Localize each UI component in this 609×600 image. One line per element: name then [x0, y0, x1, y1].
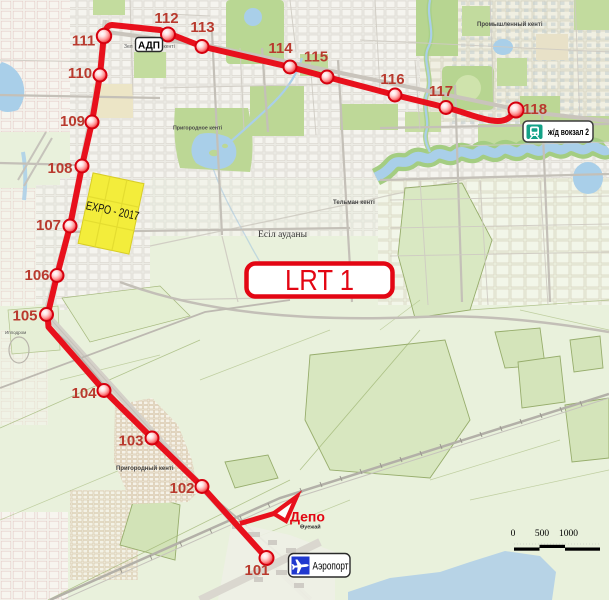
svg-text:Аэропорт: Аэропорт [313, 561, 349, 573]
svg-text:102: 102 [169, 480, 194, 497]
svg-text:1000: 1000 [559, 529, 578, 539]
svg-text:107: 107 [36, 217, 61, 234]
svg-text:101: 101 [244, 562, 269, 579]
svg-text:Пригородное кенті: Пригородное кенті [173, 126, 223, 132]
svg-text:117: 117 [429, 83, 453, 100]
svg-text:104: 104 [71, 385, 97, 402]
svg-text:Депо: Депо [290, 509, 325, 525]
svg-text:АДП: АДП [138, 40, 160, 52]
svg-text:ж/д вокзал 2: ж/д вокзал 2 [547, 127, 589, 138]
svg-text:Тельман кенті: Тельман кенті [333, 200, 375, 206]
svg-text:115: 115 [304, 49, 328, 66]
svg-text:108: 108 [47, 160, 72, 177]
svg-text:116: 116 [380, 71, 404, 88]
svg-text:Өуежай: Өуежай [300, 524, 321, 531]
svg-text:Ипподром: Ипподром [5, 330, 26, 335]
svg-text:Зел: Зел [124, 44, 133, 50]
svg-text:112: 112 [154, 10, 178, 27]
svg-text:LRT 1: LRT 1 [285, 265, 354, 297]
svg-text:111: 111 [72, 33, 95, 50]
svg-text:500: 500 [535, 529, 550, 539]
svg-text:113: 113 [190, 19, 214, 36]
svg-text:103: 103 [118, 433, 143, 450]
svg-text:114: 114 [268, 40, 293, 57]
svg-text:118: 118 [523, 101, 547, 118]
svg-text:Есіл ауданы: Есіл ауданы [258, 230, 308, 240]
svg-text:0: 0 [511, 529, 516, 539]
svg-text:105: 105 [12, 308, 37, 325]
svg-text:106: 106 [24, 267, 49, 284]
svg-text:Промышленный кенті: Промышленный кенті [477, 21, 543, 28]
svg-text:109: 109 [60, 113, 85, 130]
svg-text:Пригородный кенті: Пригородный кенті [116, 465, 174, 472]
svg-text:кенті: кенті [164, 44, 175, 50]
svg-text:110: 110 [68, 65, 92, 82]
